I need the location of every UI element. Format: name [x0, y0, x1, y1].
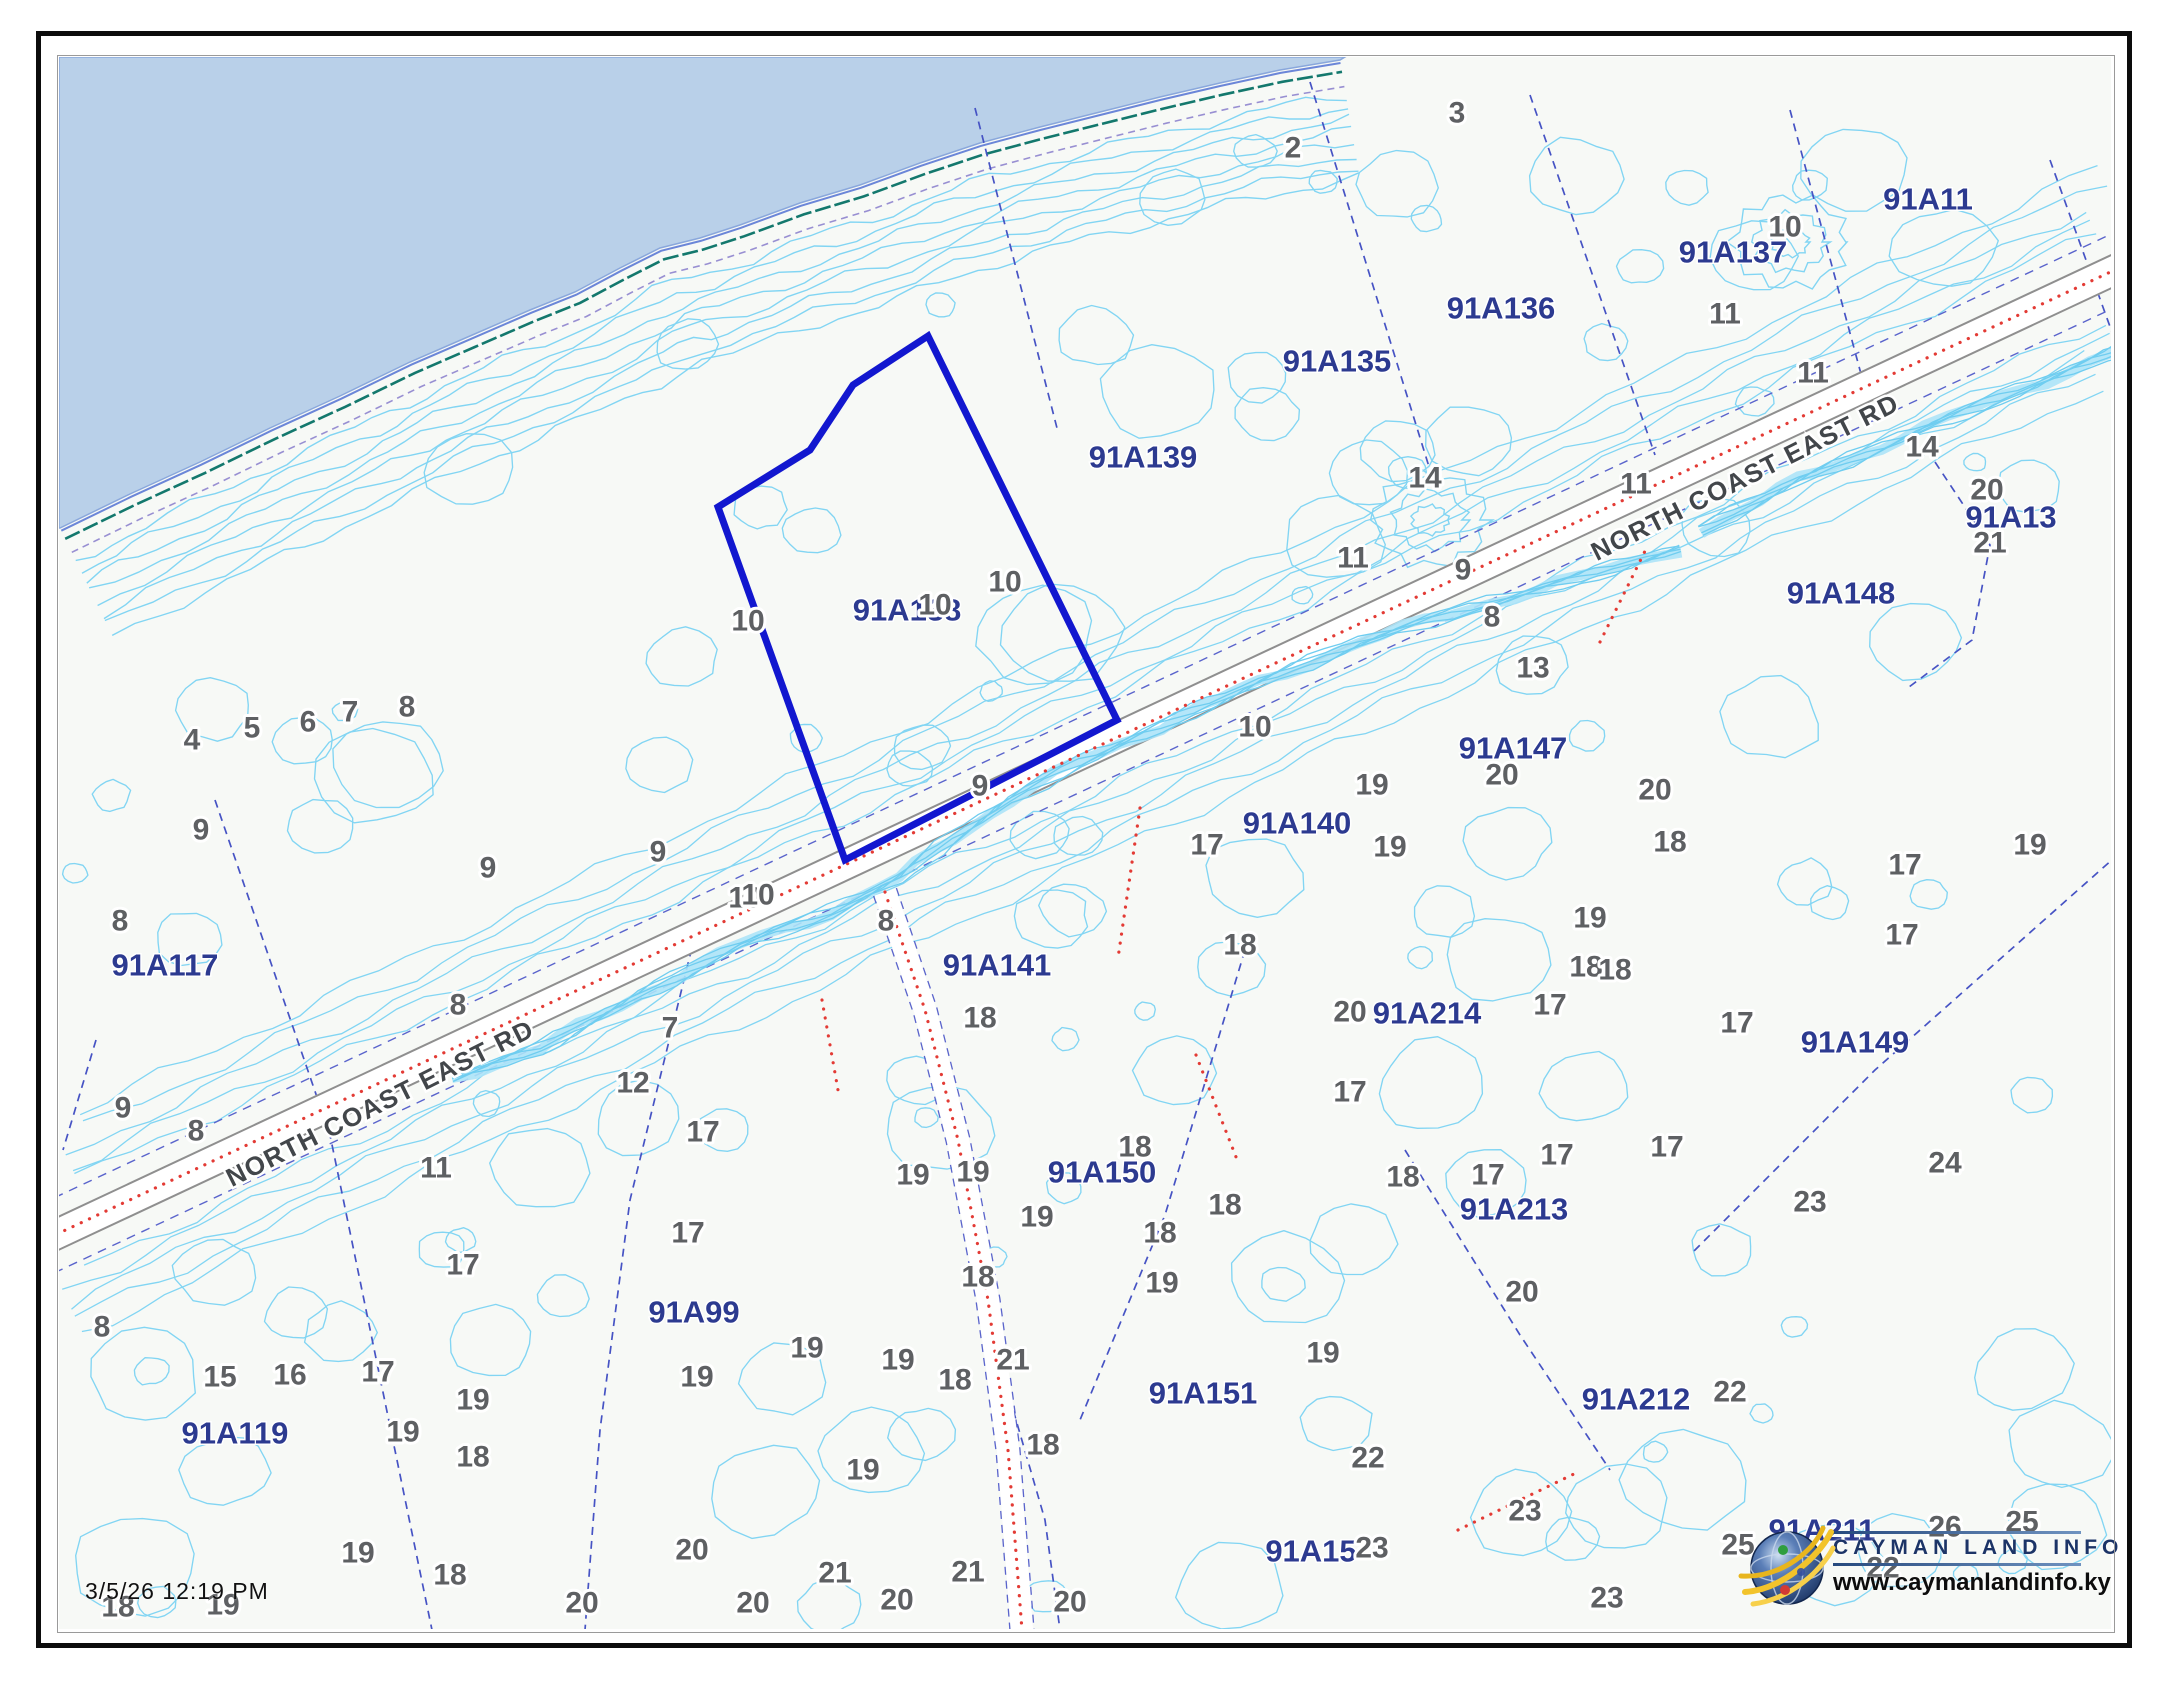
elevation-label: 19 — [1020, 1201, 1053, 1234]
elevation-label: 20 — [1485, 759, 1518, 792]
elevation-label: 10 — [741, 879, 774, 912]
elevation-label: 17 — [1885, 919, 1918, 952]
elevation-label: 6 — [300, 706, 317, 739]
elevation-label: 20 — [1053, 1586, 1086, 1619]
elevation-label: 17 — [1533, 989, 1566, 1022]
parcel-label: 91A117 — [112, 948, 219, 983]
elevation-label: 21 — [996, 1344, 1029, 1377]
elevation-label: 13 — [1516, 652, 1549, 685]
elevation-label: 9 — [972, 770, 989, 803]
elevation-label: 9 — [115, 1092, 132, 1125]
elevation-label: 19 — [1355, 769, 1388, 802]
elevation-label: 21 — [1973, 527, 2006, 560]
parcel-label: 91A119 — [182, 1416, 289, 1451]
elevation-label: 20 — [1333, 996, 1366, 1029]
elevation-label: 19 — [341, 1537, 374, 1570]
elevation-label: 11 — [1709, 298, 1741, 331]
parcel-label: 91A140 — [1243, 806, 1352, 841]
elevation-label: 19 — [956, 1156, 989, 1189]
elevation-label: 18 — [938, 1364, 971, 1397]
parcel-label: 91A212 — [1582, 1382, 1691, 1417]
elevation-label: 3 — [1449, 97, 1466, 130]
elevation-label: 20 — [1505, 1276, 1538, 1309]
elevation-label: 22 — [1713, 1376, 1746, 1409]
elevation-label: 23 — [1793, 1186, 1826, 1219]
elevation-label: 17 — [1471, 1159, 1504, 1192]
elevation-label: 23 — [1355, 1532, 1388, 1565]
elevation-label: 18 — [1223, 929, 1256, 962]
elevation-label: 18 — [1598, 954, 1631, 987]
elevation-label: 19 — [846, 1454, 879, 1487]
elevation-label: 9 — [650, 836, 667, 869]
elevation-label: 2 — [1285, 132, 1302, 165]
elevation-label: 17 — [1540, 1139, 1573, 1172]
elevation-label: 9 — [480, 852, 497, 885]
elevation-label: 21 — [951, 1556, 984, 1589]
elevation-label: 20 — [1638, 774, 1671, 807]
elevation-label: 8 — [878, 905, 895, 938]
parcel-label: 91A135 — [1283, 344, 1392, 379]
elevation-label: 18 — [1208, 1189, 1241, 1222]
elevation-label: 21 — [818, 1557, 851, 1590]
cayman-land-info-logo: CAYMAN LAND INFO www.caymanlandinfo.ky — [1735, 1512, 2081, 1616]
elevation-label: 11 — [1337, 542, 1369, 575]
elevation-label: 19 — [1373, 831, 1406, 864]
elevation-label: 22 — [1351, 1442, 1384, 1475]
elevation-label: 17 — [686, 1116, 719, 1149]
elevation-label: 8 — [94, 1311, 111, 1344]
parcel-label: 91A15 — [1265, 1534, 1356, 1569]
elevation-label: 9 — [193, 814, 210, 847]
elevation-label: 8 — [112, 905, 129, 938]
elevation-label: 20 — [880, 1584, 913, 1617]
elevation-label: 20 — [675, 1534, 708, 1567]
elevation-label: 10 — [731, 605, 764, 638]
elevation-label: 18 — [1143, 1217, 1176, 1250]
parcel-label: 91A214 — [1373, 996, 1482, 1031]
elevation-label: 8 — [188, 1115, 205, 1148]
elevation-label: 20 — [565, 1587, 598, 1620]
map-svg: 91A11791A11991A9991A13891A13991A13591A13… — [0, 0, 2168, 1700]
elevation-label: 19 — [1145, 1267, 1178, 1300]
elevation-label: 14 — [1408, 462, 1442, 495]
elevation-label: 9 — [1455, 554, 1472, 587]
elevation-label: 16 — [273, 1359, 306, 1392]
logo-rule-bottom — [1833, 1563, 2081, 1566]
elevation-label: 23 — [1590, 1582, 1623, 1615]
map-layers: 91A11791A11991A9991A13891A13991A13591A13… — [26, 57, 2168, 1634]
parcel-label: 91A11 — [1883, 182, 1973, 217]
elevation-label: 17 — [1650, 1131, 1683, 1164]
elevation-label: 17 — [361, 1356, 394, 1389]
elevation-label: 11 — [1620, 468, 1652, 501]
elevation-label: 19 — [790, 1332, 823, 1365]
parcel-label: 91A151 — [1149, 1376, 1258, 1411]
elevation-label: 18 — [961, 1261, 994, 1294]
elevation-label: 19 — [881, 1344, 914, 1377]
elevation-label: 8 — [1484, 601, 1501, 634]
parcel-label: 91A213 — [1460, 1192, 1569, 1227]
elevation-label: 19 — [2013, 829, 2046, 862]
parcel-label: 91A149 — [1801, 1025, 1910, 1060]
logo-website-link[interactable]: www.caymanlandinfo.ky — [1833, 1569, 2081, 1597]
elevation-label: 17 — [1888, 849, 1921, 882]
elevation-label: 7 — [342, 696, 359, 729]
elevation-label: 19 — [386, 1416, 419, 1449]
globe-icon — [1735, 1512, 1839, 1616]
elevation-label: 10 — [1768, 211, 1801, 244]
parcel-label: 91A139 — [1089, 440, 1198, 475]
elevation-label: 24 — [1928, 1147, 1962, 1180]
parcel-label: 91A136 — [1447, 291, 1556, 326]
elevation-label: 4 — [184, 724, 201, 757]
elevation-label: 19 — [896, 1159, 929, 1192]
map-export-page: 91A11791A11991A9991A13891A13991A13591A13… — [0, 0, 2168, 1700]
elevation-label: 10 — [918, 589, 951, 622]
elevation-label: 14 — [1905, 431, 1939, 464]
elevation-label: 17 — [1720, 1007, 1753, 1040]
elevation-label: 18 — [433, 1559, 466, 1592]
elevation-label: 19 — [456, 1384, 489, 1417]
elevation-label: 18 — [1653, 826, 1686, 859]
elevation-label: 18 — [456, 1441, 489, 1474]
elevation-label: 20 — [1970, 474, 2003, 507]
logo-rule-top — [1833, 1531, 2081, 1534]
elevation-label: 10 — [1238, 711, 1271, 744]
logo-title: CAYMAN LAND INFO — [1833, 1536, 2081, 1560]
elevation-label: 10 — [988, 566, 1021, 599]
elevation-label: 17 — [446, 1249, 479, 1282]
elevation-label: 18 — [963, 1002, 996, 1035]
elevation-label: 7 — [662, 1012, 679, 1045]
elevation-label: 17 — [1333, 1076, 1366, 1109]
map-canvas[interactable]: 91A11791A11991A9991A13891A13991A13591A13… — [0, 0, 2168, 1700]
elevation-label: 11 — [420, 1152, 452, 1185]
elevation-label: 18 — [1118, 1131, 1151, 1164]
elevation-label: 8 — [450, 989, 467, 1022]
parcel-label: 91A141 — [943, 948, 1052, 983]
elevation-label: 23 — [1508, 1495, 1541, 1528]
elevation-label: 11 — [1797, 357, 1829, 390]
elevation-label: 15 — [203, 1361, 236, 1394]
timestamp: 3/5/26 12:19 PM — [85, 1578, 269, 1605]
elevation-label: 18 — [1386, 1161, 1419, 1194]
elevation-label: 17 — [1190, 829, 1223, 862]
elevation-label: 8 — [399, 691, 416, 724]
elevation-label: 18 — [1026, 1429, 1059, 1462]
elevation-label: 19 — [1573, 902, 1606, 935]
elevation-label: 5 — [244, 712, 261, 745]
parcel-label: 91A148 — [1787, 576, 1896, 611]
elevation-label: 19 — [680, 1361, 713, 1394]
elevation-label: 20 — [736, 1587, 769, 1620]
elevation-label: 19 — [1306, 1337, 1339, 1370]
elevation-label: 12 — [616, 1067, 649, 1100]
parcel-label: 91A99 — [648, 1295, 739, 1330]
elevation-label: 17 — [671, 1217, 704, 1250]
